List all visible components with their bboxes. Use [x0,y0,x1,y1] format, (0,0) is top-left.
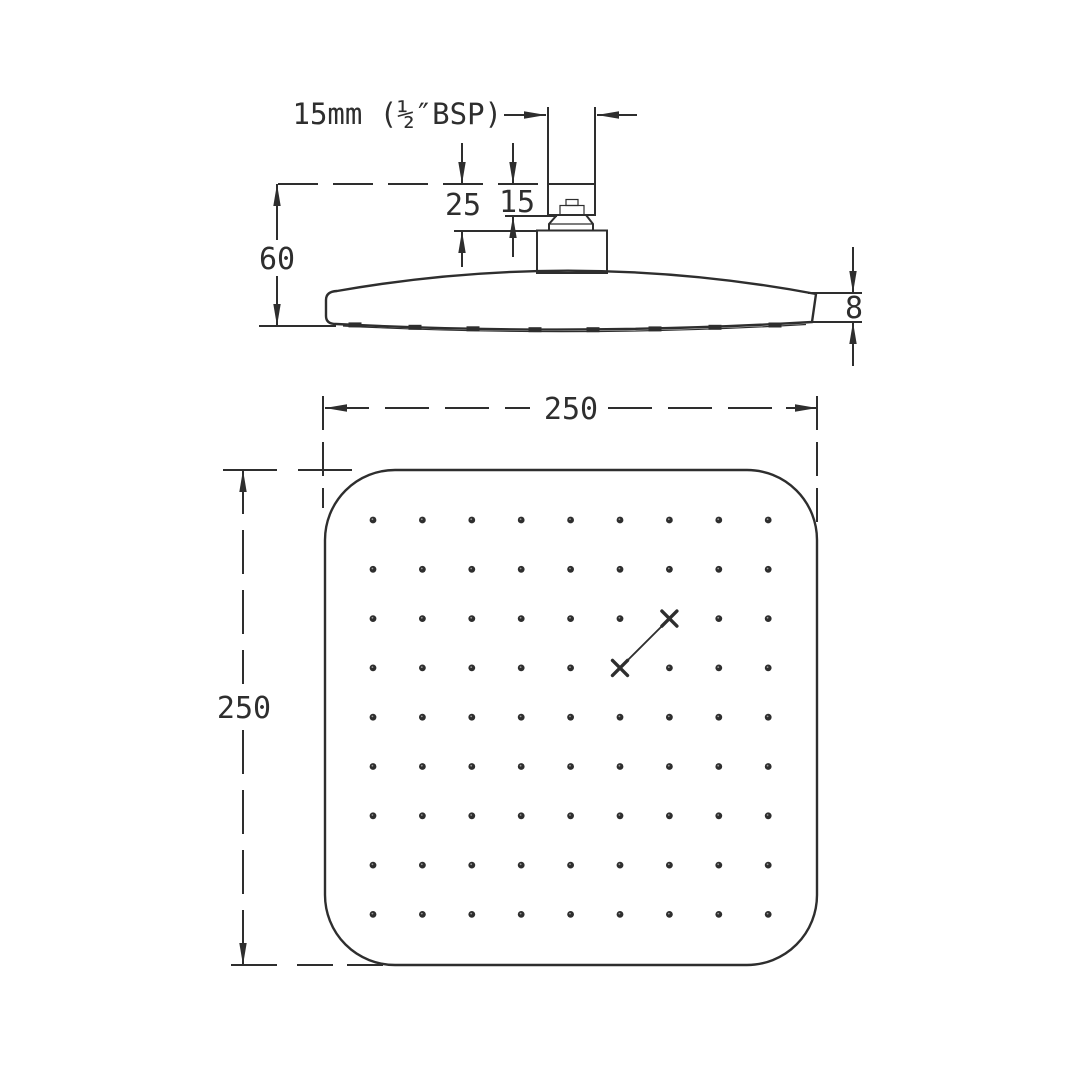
nozzle-dot-highlight [619,568,621,570]
thread-pipe [560,206,584,216]
nozzle-dot-highlight [470,666,472,668]
nozzle-dot [567,812,574,819]
nozzle-dot [666,862,673,869]
nozzle-dot [370,911,377,918]
nozzle-dot [617,566,624,573]
dim-height-label: 250 [217,691,271,726]
nozzle-dot-highlight [668,765,670,767]
nozzle-dot [468,862,475,869]
nozzle-dot-highlight [717,765,719,767]
nozzle-tick [587,327,600,332]
nozzle-dot [765,862,772,869]
nozzle-dot-highlight [668,666,670,668]
nozzle-dot-highlight [619,617,621,619]
nozzle-dot-highlight [767,814,769,816]
nozzle-dot [518,665,525,672]
nozzle-dot-highlight [470,913,472,915]
dim-edge-thickness: 8 [808,247,863,366]
nozzle-dot-highlight [520,617,522,619]
nozzle-dot-highlight [520,863,522,865]
dim-15-label: 15 [499,185,535,220]
nozzle-dot-highlight [767,913,769,915]
nozzle-dot-highlight [421,617,423,619]
nozzle-dot-highlight [619,518,621,520]
nozzle-dot-highlight [569,765,571,767]
shower-head-profile [326,271,816,330]
nozzle-dot [765,911,772,918]
nozzle-dot [715,566,722,573]
nozzle-dot-highlight [470,814,472,816]
nozzle-dot [666,763,673,770]
ball-joint-flare [549,215,593,231]
nozzle-dot-highlight [569,666,571,668]
nozzle-dot-highlight [717,913,719,915]
nozzle-dot [617,812,624,819]
nozzle-dot [715,714,722,721]
nozzle-dot [765,714,772,721]
nozzle-dot [715,862,722,869]
nozzle-dot [765,517,772,524]
nozzle-dot-highlight [668,568,670,570]
nozzle-dot-highlight [520,568,522,570]
nozzle-dot [419,911,426,918]
nozzle-dot-highlight [470,716,472,718]
nozzle-dot-highlight [421,568,423,570]
nozzle-dot [765,615,772,622]
dim-width: 250 [298,392,817,522]
nozzle-dot [518,714,525,721]
nozzle-dot [419,566,426,573]
nozzle-dot-highlight [717,716,719,718]
nozzle-dot [666,566,673,573]
dim-8-label: 8 [845,291,863,326]
nozzle-dot-highlight [569,518,571,520]
nozzle-dot-highlight [421,814,423,816]
nozzle-dot-highlight [372,863,374,865]
nozzle-dot-highlight [717,568,719,570]
thread-dimension: 15mm (½″BSP) [292,97,637,184]
nozzle-dot [617,714,624,721]
nozzle-dot [518,812,525,819]
nozzle-dot-highlight [767,863,769,865]
thread-assembly [537,184,607,273]
nozzle-dot-highlight [668,716,670,718]
nozzle-dot [419,862,426,869]
nozzle-dot-highlight [372,716,374,718]
nozzle-dot-highlight [520,765,522,767]
nozzle-dot [567,911,574,918]
nozzle-dot [617,911,624,918]
nozzle-dot [567,665,574,672]
nozzle-dot-highlight [520,666,522,668]
nozzle-dot [468,911,475,918]
nozzle-tick [649,326,662,331]
nozzle-dot [370,714,377,721]
nozzle-dot [518,615,525,622]
nozzle-dot [765,566,772,573]
nozzle-dot [370,566,377,573]
nozzle-dot [419,763,426,770]
nozzle-dot-highlight [668,814,670,816]
nozzle-dot-highlight [372,617,374,619]
nozzle-dot [765,665,772,672]
nozzle-dot-highlight [668,913,670,915]
nozzle-dot [468,615,475,622]
dim-60-label: 60 [259,242,295,277]
nozzle-dot-highlight [767,765,769,767]
nozzle-dot [666,665,673,672]
nozzle-dot [715,812,722,819]
nozzle-dot-highlight [569,814,571,816]
nozzle-tick [467,326,480,331]
nozzle-dot-highlight [421,863,423,865]
nozzle-dot [666,517,673,524]
nozzle-dot [567,862,574,869]
nozzle-dot [370,517,377,524]
nozzle-dot-highlight [619,863,621,865]
nozzle-dot [617,763,624,770]
nozzle-dot [468,517,475,524]
nozzle-dot [567,763,574,770]
nozzle-dot-highlight [372,666,374,668]
nozzle-dot-highlight [520,913,522,915]
nozzle-dot-highlight [470,617,472,619]
nozzle-dot [419,665,426,672]
nozzle-dot [765,763,772,770]
thread-pipe-tip [566,200,578,206]
nozzle-dot-highlight [717,666,719,668]
nozzle-dot-highlight [717,518,719,520]
nozzle-dot [518,911,525,918]
nozzle-dot-highlight [619,814,621,816]
nozzle-dot [567,714,574,721]
nozzle-dot [617,862,624,869]
dim-head-height: 60 [259,184,336,326]
dim-25-label: 25 [445,188,481,223]
nozzle-dot [518,517,525,524]
nozzle-dot-highlight [569,617,571,619]
nozzle-dot [567,615,574,622]
nozzle-dot-highlight [372,765,374,767]
nozzle-dot [370,615,377,622]
top-view: 250 250 [217,392,817,965]
nozzle-dot-highlight [619,716,621,718]
nozzle-dot [617,615,624,622]
nozzle-dot-highlight [619,913,621,915]
nozzle-tick [769,323,782,328]
dim-height: 250 [217,470,390,965]
nozzle-dot [468,566,475,573]
nozzle-dot-highlight [470,863,472,865]
nozzle-dot-highlight [717,863,719,865]
nozzle-dot-highlight [767,716,769,718]
nozzle-dot-highlight [767,666,769,668]
nozzle-dot-highlight [767,617,769,619]
nozzle-dot-highlight [668,863,670,865]
nozzle-dot-highlight [520,716,522,718]
nozzle-dot [419,517,426,524]
nozzle-dot [370,862,377,869]
dim-width-label: 250 [544,392,598,427]
nozzle-dot [715,763,722,770]
nozzle-tick [409,325,422,330]
nozzle-dot-highlight [421,518,423,520]
nozzle-dot-highlight [619,765,621,767]
nozzle-dot-highlight [372,913,374,915]
nozzle-dot-highlight [421,913,423,915]
nozzle-dot [715,615,722,622]
nozzle-tick [349,322,362,327]
nozzle-dot [468,812,475,819]
nozzle-dot-highlight [520,814,522,816]
nozzle-dot-highlight [372,814,374,816]
nozzle-dot-highlight [569,863,571,865]
nozzle-dot [518,763,525,770]
nozzle-dot [518,862,525,869]
nozzle-dot [370,665,377,672]
nozzle-spacing-callout-line [626,625,663,662]
nozzle-dot-highlight [767,518,769,520]
nozzle-dot [468,763,475,770]
nozzle-dot-highlight [569,568,571,570]
nozzle-dot [765,812,772,819]
nozzle-dot [567,566,574,573]
nozzle-dot [567,517,574,524]
nozzle-dot [715,911,722,918]
nozzle-dot-highlight [372,518,374,520]
nozzle-dot [617,517,624,524]
nozzle-dot-highlight [569,716,571,718]
nozzle-dot [715,517,722,524]
thread-size-label: 15mm (½″BSP) [292,97,502,131]
nozzle-dot [370,763,377,770]
nozzle-dot-highlight [717,814,719,816]
technical-drawing: 15mm (½″BSP) [0,0,1080,1080]
nozzle-dot-highlight [372,568,374,570]
nozzle-dot [419,714,426,721]
nozzle-dot [715,665,722,672]
side-view: 15mm (½″BSP) [259,97,863,366]
nozzle-dot [419,615,426,622]
nozzle-dot-highlight [470,765,472,767]
nozzle-dot-highlight [470,568,472,570]
nozzle-dot-highlight [470,518,472,520]
nozzle-dot [518,566,525,573]
nozzle-dot-highlight [421,666,423,668]
nozzle-dot-highlight [421,765,423,767]
nozzle-dot [666,911,673,918]
nozzle-dot [468,665,475,672]
nozzle-dot [666,714,673,721]
nozzle-dot-highlight [668,518,670,520]
nozzle-grid [370,517,772,918]
nozzle-tick [529,327,542,332]
nozzle-tick [709,325,722,330]
nozzle-dot-highlight [520,518,522,520]
nozzle-dot [666,812,673,819]
nozzle-dot-highlight [569,913,571,915]
nozzle-dot [370,812,377,819]
nozzle-dot-highlight [421,716,423,718]
nozzle-dot [468,714,475,721]
connector-block [537,231,607,274]
nozzle-dot-highlight [767,568,769,570]
nozzle-dot-highlight [717,617,719,619]
nozzle-dot [419,812,426,819]
